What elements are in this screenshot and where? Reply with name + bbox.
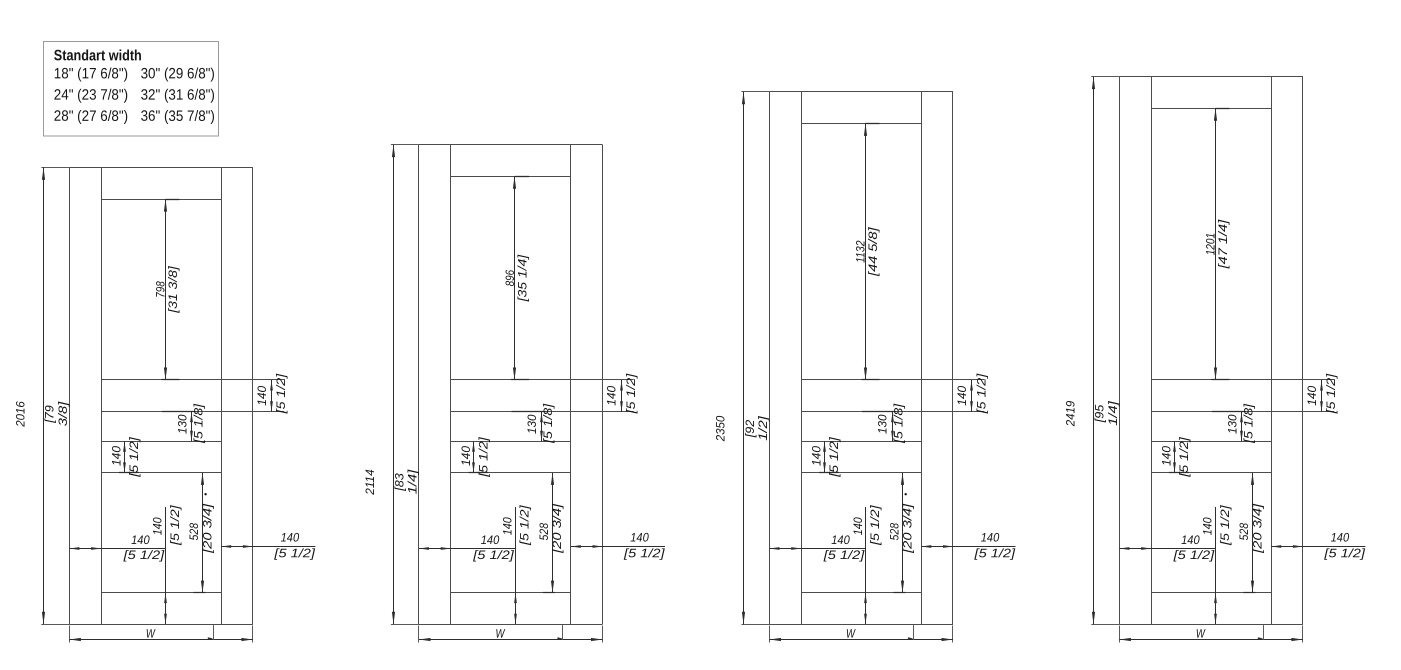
svg-text:[95: [95 bbox=[1093, 405, 1107, 424]
svg-text:[5 1/2]: [5 1/2] bbox=[1177, 437, 1191, 478]
svg-text:24" (23 7/8"): 24" (23 7/8") bbox=[54, 87, 128, 104]
svg-text:140: 140 bbox=[109, 446, 123, 466]
svg-text:[5 1/8]: [5 1/8] bbox=[191, 403, 205, 444]
svg-text:[20 3/4]: [20 3/4] bbox=[1251, 503, 1265, 554]
svg-text:140: 140 bbox=[604, 386, 618, 406]
svg-text:140: 140 bbox=[809, 446, 823, 466]
svg-text:130: 130 bbox=[175, 414, 189, 434]
svg-text:130: 130 bbox=[875, 414, 889, 434]
svg-text:140: 140 bbox=[1331, 530, 1350, 544]
svg-text:[5 1/2]: [5 1/2] bbox=[1324, 373, 1338, 414]
svg-text:[5 1/2]: [5 1/2] bbox=[274, 373, 288, 414]
svg-text:2016: 2016 bbox=[14, 401, 28, 428]
svg-text:[5 1/2]: [5 1/2] bbox=[1172, 548, 1214, 562]
svg-text:140: 140 bbox=[981, 530, 1000, 544]
svg-text:528: 528 bbox=[1237, 523, 1251, 541]
svg-text:140: 140 bbox=[481, 533, 500, 547]
svg-text:W: W bbox=[1196, 627, 1206, 641]
svg-text:[20 3/4]: [20 3/4] bbox=[550, 503, 564, 554]
svg-text:528: 528 bbox=[887, 523, 901, 541]
svg-text:[20 3/4]: [20 3/4] bbox=[901, 503, 915, 554]
svg-text:[5 1/2]: [5 1/2] bbox=[973, 546, 1015, 560]
svg-text:W: W bbox=[846, 627, 856, 641]
svg-text:32" (31 6/8"): 32" (31 6/8") bbox=[141, 87, 215, 104]
svg-text:[5 1/2]: [5 1/2] bbox=[127, 437, 141, 478]
svg-text:140: 140 bbox=[1181, 533, 1200, 547]
svg-text:140: 140 bbox=[281, 530, 300, 544]
svg-text:[5 1/2]: [5 1/2] bbox=[868, 505, 882, 546]
svg-text:W: W bbox=[146, 627, 156, 641]
svg-text:140: 140 bbox=[459, 446, 473, 466]
svg-text:[79: [79 bbox=[43, 405, 57, 424]
svg-text:140: 140 bbox=[831, 533, 850, 547]
svg-text:[5 1/2]: [5 1/2] bbox=[472, 548, 514, 562]
svg-text:130: 130 bbox=[1225, 414, 1239, 434]
svg-text:[5 1/2]: [5 1/2] bbox=[168, 505, 182, 546]
svg-text:[5 1/2]: [5 1/2] bbox=[974, 373, 988, 414]
svg-text:[31 3/8]: [31 3/8] bbox=[166, 266, 180, 314]
svg-text:[5 1/2]: [5 1/2] bbox=[273, 546, 315, 560]
svg-text:[5 1/8]: [5 1/8] bbox=[892, 403, 906, 444]
svg-text:528: 528 bbox=[187, 523, 201, 541]
svg-text:140: 140 bbox=[1159, 446, 1173, 466]
svg-text:[5 1/2]: [5 1/2] bbox=[518, 505, 532, 546]
svg-text:[92: [92 bbox=[743, 420, 757, 439]
svg-text:2419: 2419 bbox=[1064, 401, 1078, 428]
svg-text:28" (27 6/8"): 28" (27 6/8") bbox=[54, 108, 128, 125]
svg-text:[5 1/2]: [5 1/2] bbox=[476, 437, 490, 478]
svg-text:[47 1/4]: [47 1/4] bbox=[1216, 219, 1230, 269]
svg-text:18" (17 6/8"): 18" (17 6/8") bbox=[54, 65, 128, 82]
svg-text:[5 1/2]: [5 1/2] bbox=[624, 373, 638, 414]
svg-text:2114: 2114 bbox=[363, 469, 377, 496]
svg-text:[83: [83 bbox=[392, 473, 406, 492]
svg-text:[20 3/4]: [20 3/4] bbox=[201, 503, 215, 554]
svg-text:1/4]: 1/4] bbox=[1106, 401, 1120, 426]
svg-text:[44 5/8]: [44 5/8] bbox=[866, 227, 880, 277]
svg-text:140: 140 bbox=[500, 517, 514, 535]
svg-text:[5 1/2]: [5 1/2] bbox=[1323, 546, 1365, 560]
svg-text:140: 140 bbox=[1305, 386, 1319, 406]
svg-text:W: W bbox=[495, 627, 505, 641]
svg-text:528: 528 bbox=[537, 523, 551, 541]
svg-text:140: 140 bbox=[630, 530, 649, 544]
svg-text:[5 1/8]: [5 1/8] bbox=[1241, 403, 1255, 444]
svg-text:3/8]: 3/8] bbox=[56, 401, 70, 426]
svg-text:[5 1/2]: [5 1/2] bbox=[122, 548, 164, 562]
svg-text:130: 130 bbox=[525, 414, 539, 434]
svg-text:Standart width: Standart width bbox=[54, 47, 142, 64]
svg-text:140: 140 bbox=[1201, 517, 1215, 535]
svg-text:36" (35 7/8"): 36" (35 7/8") bbox=[141, 108, 215, 125]
svg-text:30" (29 6/8"): 30" (29 6/8") bbox=[141, 65, 215, 82]
svg-text:[5 1/2]: [5 1/2] bbox=[623, 546, 665, 560]
svg-text:140: 140 bbox=[151, 517, 165, 535]
svg-text:1/2]: 1/2] bbox=[756, 416, 770, 441]
svg-text:140: 140 bbox=[131, 533, 150, 547]
svg-text:[5 1/2]: [5 1/2] bbox=[827, 437, 841, 478]
svg-text:2350: 2350 bbox=[714, 416, 728, 443]
svg-text:[35 1/4]: [35 1/4] bbox=[515, 254, 529, 302]
svg-text:1/4]: 1/4] bbox=[406, 469, 420, 494]
svg-text:140: 140 bbox=[255, 386, 269, 406]
svg-text:[5 1/2]: [5 1/2] bbox=[823, 548, 865, 562]
svg-text:140: 140 bbox=[955, 386, 969, 406]
svg-text:[5 1/2]: [5 1/2] bbox=[1218, 505, 1232, 546]
svg-text:140: 140 bbox=[851, 517, 865, 535]
svg-text:[5 1/8]: [5 1/8] bbox=[541, 403, 555, 444]
